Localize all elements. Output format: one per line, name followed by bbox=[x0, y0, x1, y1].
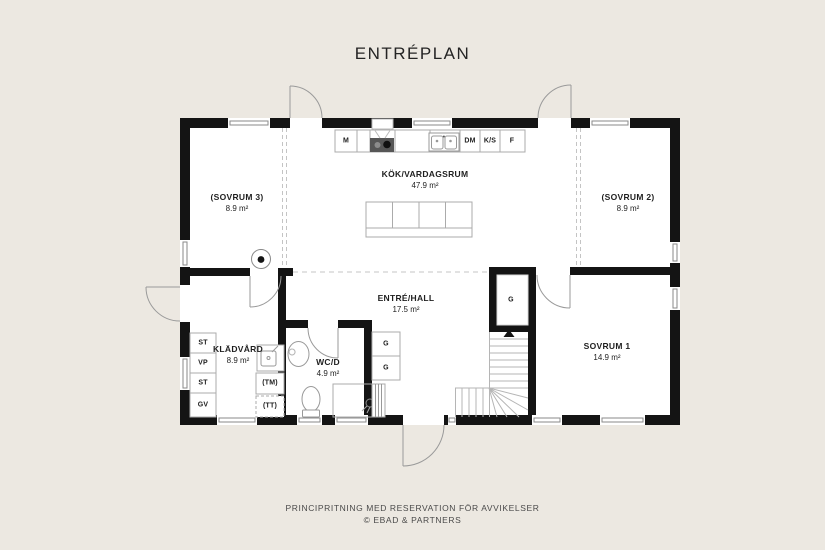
room-label-kitchen-living: KÖK/VARDAGSRUM 47.9 m² bbox=[382, 168, 469, 192]
appliance-label-microwave: M bbox=[343, 138, 349, 145]
appliance-label-fridge-freezer: K/S bbox=[484, 138, 496, 145]
room-area: 14.9 m² bbox=[584, 352, 631, 364]
room-name: KÖK/VARDAGSRUM bbox=[382, 168, 469, 180]
wardrobe-label-1: G bbox=[383, 341, 389, 348]
room-area: 8.9 m² bbox=[213, 355, 263, 367]
wardrobe-label-3: G bbox=[508, 297, 514, 304]
floorplan-drawing bbox=[0, 0, 825, 550]
laundry-label-st-upper: ST bbox=[198, 340, 207, 347]
footer: PRINCIPRITNING MED RESERVATION FÖR AVVIK… bbox=[0, 503, 825, 525]
room-name: (SOVRUM 2) bbox=[601, 191, 654, 203]
laundry-label-gv: GV bbox=[198, 402, 209, 409]
laundry-label-st-lower: ST bbox=[198, 380, 207, 387]
room-name: SOVRUM 1 bbox=[584, 340, 631, 352]
fireplace-symbol bbox=[252, 250, 271, 269]
room-label-wc: WC/D 4.9 m² bbox=[316, 356, 340, 380]
kitchen-island bbox=[366, 202, 472, 237]
appliance-label-freezer: F bbox=[510, 138, 514, 145]
laundry-label-tt: (TT) bbox=[263, 403, 277, 410]
room-name: (SOVRUM 3) bbox=[210, 191, 263, 203]
room-area: 4.9 m² bbox=[316, 368, 340, 380]
room-name: ENTRÉ/HALL bbox=[378, 292, 435, 304]
room-area: 47.9 m² bbox=[382, 180, 469, 192]
room-label-bedroom2: (SOVRUM 2) 8.9 m² bbox=[601, 191, 654, 215]
laundry-label-vp: VP bbox=[198, 360, 208, 367]
floorplan-page: ENTRÉPLAN bbox=[0, 0, 825, 550]
room-label-bedroom3: (SOVRUM 3) 8.9 m² bbox=[210, 191, 263, 215]
room-area: 8.9 m² bbox=[210, 203, 263, 215]
room-label-laundry: KLÄDVÅRD 8.9 m² bbox=[213, 343, 263, 367]
room-area: 8.9 m² bbox=[601, 203, 654, 215]
room-area: 17.5 m² bbox=[378, 304, 435, 316]
room-name: KLÄDVÅRD bbox=[213, 343, 263, 355]
kitchen-sink bbox=[429, 133, 459, 151]
wardrobe-label-2: G bbox=[383, 365, 389, 372]
room-name: WC/D bbox=[316, 356, 340, 368]
appliance-label-dishwasher: DM bbox=[464, 138, 475, 145]
room-label-hall: ENTRÉ/HALL 17.5 m² bbox=[378, 292, 435, 316]
room-label-bedroom1: SOVRUM 1 14.9 m² bbox=[584, 340, 631, 364]
credit-text: © EBAD & PARTNERS bbox=[0, 515, 825, 525]
laundry-label-tm: (TM) bbox=[262, 380, 278, 387]
disclaimer-text: PRINCIPRITNING MED RESERVATION FÖR AVVIK… bbox=[0, 503, 825, 513]
